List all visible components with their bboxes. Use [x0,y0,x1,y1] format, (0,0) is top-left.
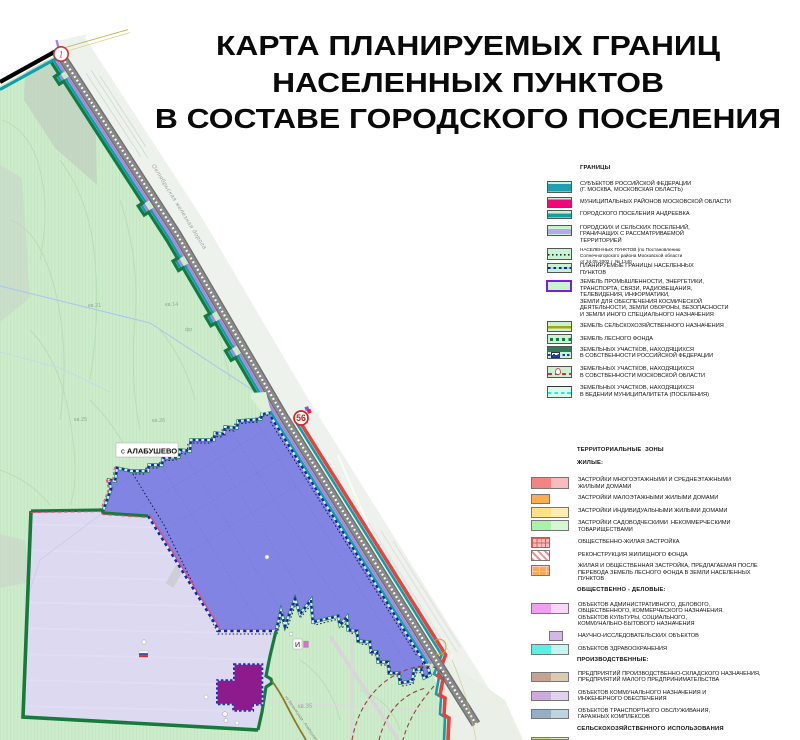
svg-text:кв.14: кв.14 [165,302,178,308]
svg-text:кв.35: кв.35 [298,704,313,710]
svg-text:кв 21: кв 21 [88,303,101,309]
svg-text:56: 56 [296,413,306,423]
svg-text:кв.26: кв.26 [152,418,165,424]
svg-text:фр: фр [185,327,192,333]
svg-text:И: И [295,642,300,649]
svg-text:с АЛАБУШЕВО: с АЛАБУШЕВО [121,447,177,456]
svg-text:кв.25: кв.25 [74,417,87,423]
svg-text:1: 1 [59,50,64,60]
